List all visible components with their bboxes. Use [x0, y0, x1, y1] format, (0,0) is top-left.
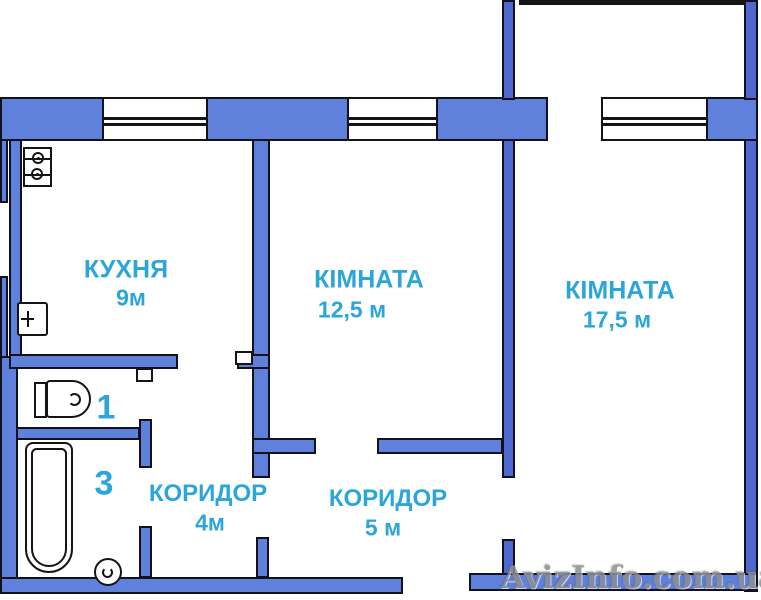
kitchen-label: КУХНЯ [84, 256, 168, 285]
room-medium-bottom-wall-left [252, 438, 316, 454]
left-outer-wall-upper [0, 139, 8, 203]
stove-burner-icon [32, 152, 44, 164]
window-pane [603, 117, 706, 120]
kitchen-bottom-wall [9, 354, 178, 369]
room-medium-area-label: 12,5 м [318, 297, 386, 324]
toilet-bowl-icon [46, 380, 91, 418]
room-medium-label: КІМНАТА [314, 266, 424, 295]
wc-number-label: 1 [97, 389, 116, 428]
left-outer-wall-lower [0, 356, 18, 593]
bathroom-number-label: 3 [95, 465, 114, 504]
left-outer-wall-mid [0, 276, 8, 358]
kitchen-area-label: 9м [116, 285, 146, 312]
window-pane [603, 123, 706, 126]
room-large-area-label: 17,5 м [583, 307, 651, 334]
wc-bathroom-divider-wall [16, 427, 140, 440]
kitchen-room-divider-wall [252, 139, 270, 478]
right-outer-wall-upper [744, 0, 758, 100]
stove-icon [23, 147, 52, 187]
room-medium-window [347, 97, 438, 141]
top-wall-segment-3 [436, 97, 548, 141]
corridor-small-area-label: 4м [195, 510, 225, 537]
corridor-large-label: КОРИДОР [329, 485, 447, 513]
sink-tap-line [27, 311, 29, 327]
right-outer-wall [744, 139, 758, 592]
corridor-small-label: КОРИДОР [149, 480, 267, 508]
room-medium-bottom-wall-right [377, 438, 503, 454]
bathtub-inner-icon [31, 448, 67, 567]
watermark-text: AvizInfo.com.ua [501, 560, 761, 596]
floor-plan-canvas: КУХНЯ 9м КІМНАТА 12,5 м КІМНАТА 17,5 м К… [0, 0, 761, 600]
corridor-divider-stub [256, 537, 269, 578]
washbasin-mark [102, 567, 113, 578]
top-wall-segment-2 [206, 97, 349, 141]
bathroom-corridor-wall-lower [139, 526, 152, 578]
door-leaf-kitchen-icon [235, 351, 253, 365]
corridor-large-area-label: 5 м [365, 515, 401, 542]
top-wall-segment-4 [706, 97, 758, 141]
kitchen-window [102, 97, 208, 141]
room-large-label: КІМНАТА [565, 277, 675, 306]
window-pane [349, 123, 436, 126]
bathroom-corridor-wall-upper [139, 419, 152, 468]
kitchen-sink-icon [17, 302, 48, 336]
washbasin-icon [94, 558, 122, 586]
room-large-left-wall [502, 139, 515, 478]
stove-burner-icon [31, 168, 43, 180]
room-large-left-wall-balcony [502, 0, 515, 100]
top-wall-segment-1 [0, 97, 104, 141]
balcony-top-edge [519, 0, 752, 5]
window-pane [104, 117, 206, 120]
toilet-curl [68, 393, 81, 406]
balcony-window [601, 97, 708, 141]
door-leaf-wc-icon [136, 368, 153, 382]
window-pane [104, 123, 206, 126]
window-pane [349, 117, 436, 120]
bottom-wall-left [0, 577, 403, 594]
